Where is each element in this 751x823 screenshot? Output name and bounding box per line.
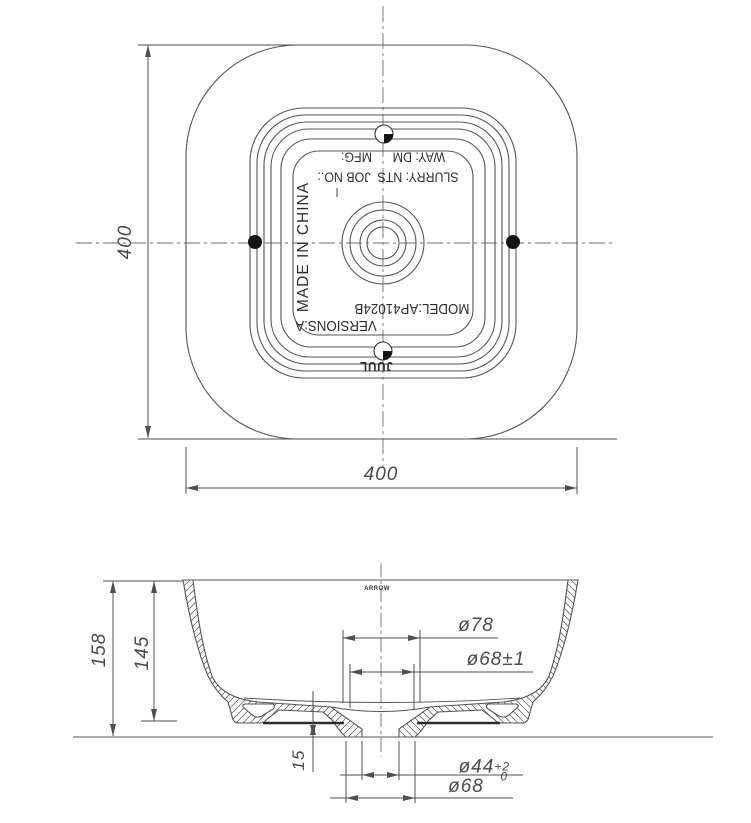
dim-label-15: 15 xyxy=(289,750,309,771)
stamp-logo: JUUL xyxy=(359,359,393,373)
datum-target-bottom xyxy=(374,342,392,360)
funnel-mouth-arc xyxy=(331,707,430,712)
dim-label-dia44-base: ø44 xyxy=(459,757,495,778)
section-solid-left xyxy=(183,580,362,737)
top-view xyxy=(76,6,617,494)
stamp-model-number: MODEL:AP41024B xyxy=(355,300,470,316)
dim-label-145: 145 xyxy=(132,636,154,671)
stamp-way-mfg: WAY: DM MFG: xyxy=(341,150,445,165)
dim-label-dia44: ø44+20 xyxy=(446,735,510,782)
dim-label-dia78: ø78 xyxy=(458,615,494,637)
dim-top-view-height xyxy=(138,45,617,439)
stamp-made-in-china: MADE IN CHINA xyxy=(295,182,313,312)
drawing-canvas xyxy=(0,0,751,823)
dim-label-width-400: 400 xyxy=(364,464,399,486)
mounting-dot-right xyxy=(506,235,520,249)
mounting-dot-left xyxy=(248,235,262,249)
dia44-tol-lower: 0 xyxy=(494,772,510,782)
brand-mark: ARROW xyxy=(364,586,390,592)
dim-label-height-400: 400 xyxy=(115,225,137,260)
dim-label-dia44-tolerance: +20 xyxy=(494,762,510,782)
dim-label-dia68-outlet: ø68 xyxy=(448,776,484,798)
stamp-slurry-job: SLURRY: NTS JOB NO.: xyxy=(317,170,458,185)
technical-drawing-sheet: 400 400 WAY: DM MFG: SLURRY: NTS JOB NO.… xyxy=(0,0,751,823)
centerlines-top-view xyxy=(76,6,612,467)
dim-label-158: 158 xyxy=(89,633,111,668)
section-view xyxy=(73,563,713,803)
datum-target-top xyxy=(375,125,393,143)
dim-label-dia68-tol: ø68±1 xyxy=(467,649,526,671)
stamp-version: VERSIONS:A xyxy=(295,317,377,333)
floor-far-edge xyxy=(244,698,520,703)
dim-drain-height xyxy=(310,691,316,772)
